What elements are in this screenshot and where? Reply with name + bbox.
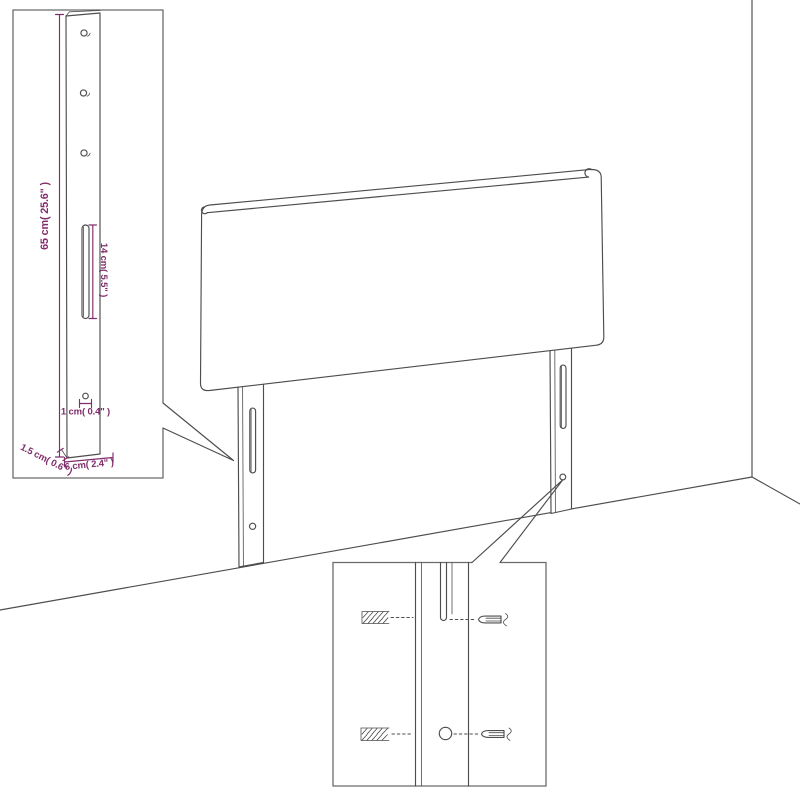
detail-box-bottom-border <box>333 563 546 787</box>
headboard-dimension-diagram: 65 cm( 25.6" ) 14 cm( 5.5" ) 1 cm( 0.4" … <box>0 0 800 800</box>
dim-hole-label: 1 cm( 0.4" ) <box>61 407 110 418</box>
floor-line-right <box>752 477 800 504</box>
dim-slot-label: 14 cm( 5.5" ) <box>98 243 109 297</box>
callout-wedges <box>163 403 563 563</box>
post-front-face <box>66 13 100 458</box>
detail-box-bottom <box>333 563 546 787</box>
callout-wedge-left-leg <box>163 403 234 461</box>
dim-height-label: 65 cm( 25.6" ) <box>39 182 51 250</box>
headboard-panel <box>200 169 603 391</box>
diagram-canvas: 65 cm( 25.6" ) 14 cm( 5.5" ) 1 cm( 0.4" … <box>0 0 800 800</box>
callout-wedge-mounting <box>472 480 563 563</box>
detail-box-left: 65 cm( 25.6" ) 14 cm( 5.5" ) 1 cm( 0.4" … <box>13 10 163 478</box>
panel-outline <box>200 169 603 390</box>
